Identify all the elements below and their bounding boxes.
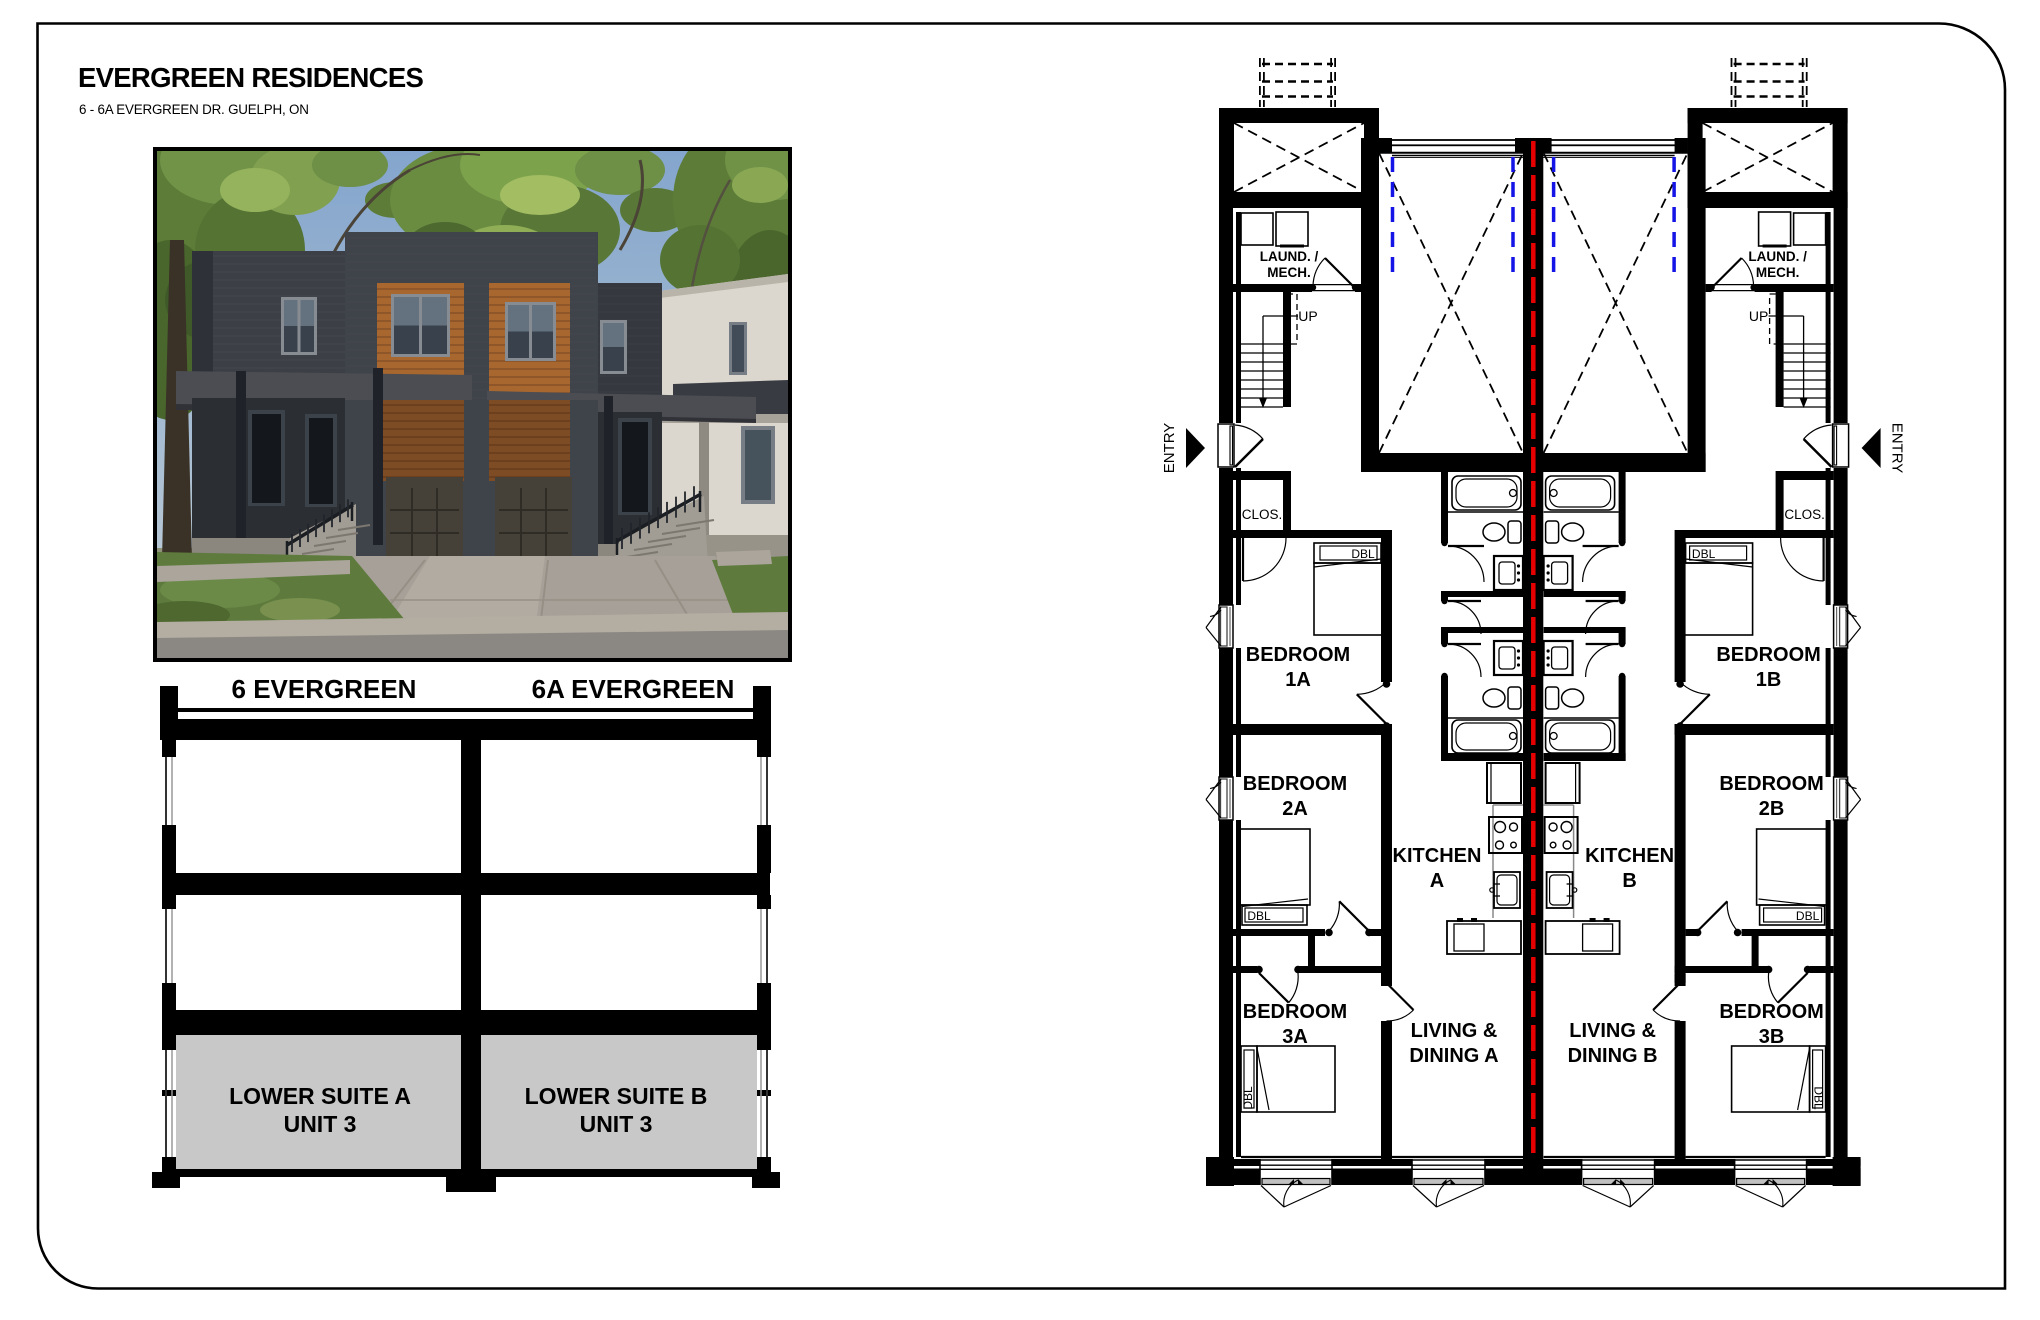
svg-text:ENTRY: ENTRY	[1161, 423, 1178, 474]
svg-text:LOWER SUITE A: LOWER SUITE A	[229, 1083, 411, 1109]
svg-text:BEDROOM: BEDROOM	[1246, 644, 1350, 666]
svg-text:CLOS.: CLOS.	[1242, 507, 1283, 522]
svg-text:DBL: DBL	[1247, 909, 1271, 923]
svg-text:LOWER SUITE B: LOWER SUITE B	[525, 1083, 708, 1109]
svg-text:B: B	[1622, 870, 1636, 892]
svg-text:DBL: DBL	[1351, 547, 1375, 561]
svg-text:MECH.: MECH.	[1267, 265, 1311, 280]
svg-text:BEDROOM: BEDROOM	[1719, 773, 1823, 795]
svg-text:LAUND. /: LAUND. /	[1260, 249, 1319, 264]
svg-text:MECH.: MECH.	[1756, 265, 1800, 280]
svg-text:BEDROOM: BEDROOM	[1719, 1001, 1823, 1023]
svg-text:UNIT 3: UNIT 3	[580, 1111, 653, 1137]
svg-text:DBL: DBL	[1692, 547, 1716, 561]
svg-text:DBL: DBL	[1241, 1086, 1255, 1110]
svg-text:2B: 2B	[1759, 798, 1785, 820]
svg-text:ENTRY: ENTRY	[1889, 423, 1906, 474]
svg-text:KITCHEN: KITCHEN	[1585, 845, 1674, 867]
svg-text:3A: 3A	[1282, 1026, 1308, 1048]
svg-text:LIVING &: LIVING &	[1411, 1020, 1498, 1042]
svg-text:6A EVERGREEN: 6A EVERGREEN	[532, 674, 735, 704]
svg-text:LIVING &: LIVING &	[1569, 1020, 1656, 1042]
svg-text:UP: UP	[1298, 308, 1317, 324]
svg-text:6 EVERGREEN: 6 EVERGREEN	[232, 674, 417, 704]
svg-text:CLOS.: CLOS.	[1784, 507, 1825, 522]
svg-text:6 - 6A EVERGREEN DR. GUELPH, O: 6 - 6A EVERGREEN DR. GUELPH, ON	[79, 102, 309, 117]
svg-text:EVERGREEN RESIDENCES: EVERGREEN RESIDENCES	[78, 62, 423, 93]
svg-text:BEDROOM: BEDROOM	[1716, 644, 1820, 666]
svg-text:1B: 1B	[1756, 669, 1782, 691]
svg-text:DBL: DBL	[1812, 1086, 1826, 1110]
svg-text:UNIT 3: UNIT 3	[284, 1111, 357, 1137]
svg-text:KITCHEN: KITCHEN	[1393, 845, 1482, 867]
svg-text:BEDROOM: BEDROOM	[1243, 1001, 1347, 1023]
svg-text:DINING A: DINING A	[1409, 1045, 1498, 1067]
svg-text:UP: UP	[1749, 308, 1768, 324]
svg-text:DINING B: DINING B	[1568, 1045, 1658, 1067]
svg-text:A: A	[1430, 870, 1444, 892]
svg-text:BEDROOM: BEDROOM	[1243, 773, 1347, 795]
svg-text:DBL: DBL	[1796, 909, 1820, 923]
svg-text:1A: 1A	[1285, 669, 1311, 691]
svg-text:LAUND. /: LAUND. /	[1748, 249, 1807, 264]
svg-text:3B: 3B	[1759, 1026, 1785, 1048]
svg-text:2A: 2A	[1282, 798, 1308, 820]
